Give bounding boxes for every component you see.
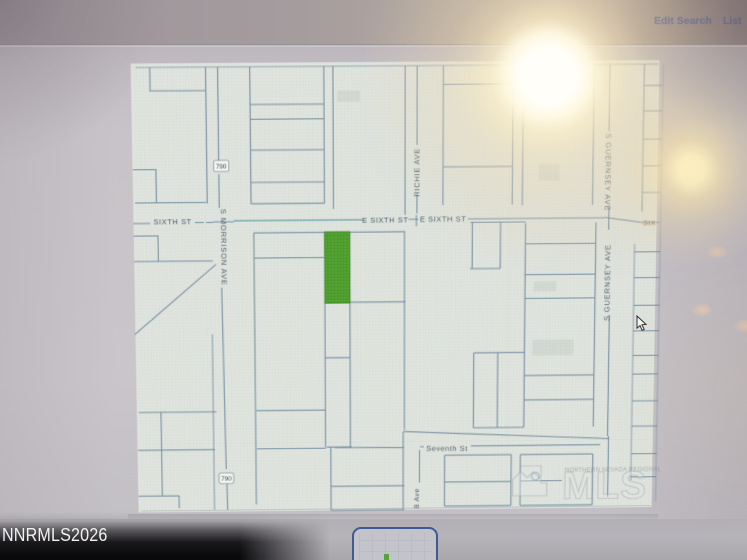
svg-text:S MORRISON AVE: S MORRISON AVE — [219, 209, 229, 286]
svg-text:E SIXTH ST: E SIXTH ST — [420, 214, 466, 223]
svg-text:RICHIE AVE: RICHIE AVE — [413, 148, 422, 197]
svg-text:790: 790 — [221, 476, 232, 483]
svg-text:SIX: SIX — [643, 219, 656, 228]
svg-text:B Ave: B Ave — [413, 488, 421, 508]
svg-text:MLS: MLS — [562, 463, 647, 507]
svg-text:Seventh St: Seventh St — [426, 444, 468, 453]
svg-text:E SIXTH ST: E SIXTH ST — [362, 215, 408, 224]
svg-text:SIXTH ST: SIXTH ST — [153, 217, 191, 226]
svg-text:S GUERNSEY AVE: S GUERNSEY AVE — [603, 244, 613, 321]
svg-text:S GUERNSEY AVE: S GUERNSEY AVE — [603, 133, 613, 211]
svg-text:790: 790 — [216, 164, 227, 171]
